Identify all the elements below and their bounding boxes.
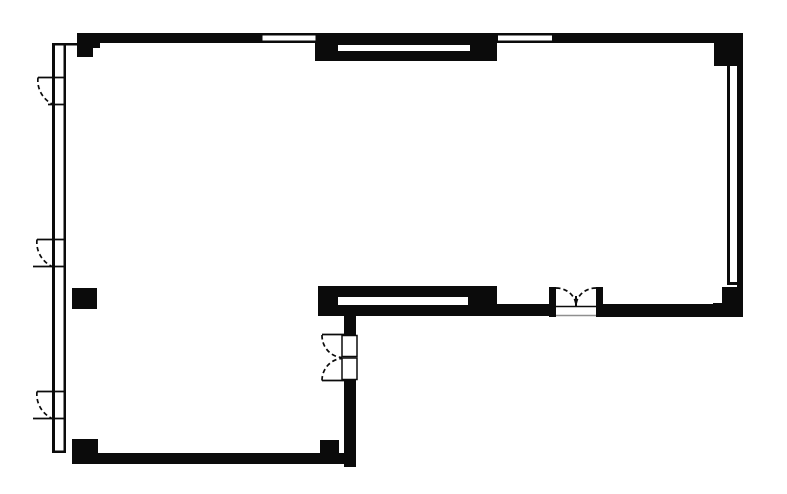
interior-door-bottom-swing-arc bbox=[322, 359, 342, 381]
interior-door-leaf-top bbox=[342, 336, 357, 357]
top-left-corner-block-step bbox=[77, 33, 93, 57]
left-door-3-swing-arc bbox=[37, 392, 52, 419]
right-wall-inner-glass-line bbox=[727, 63, 730, 284]
interior-door-top-swing-arc bbox=[322, 335, 342, 358]
left-wall-top-tick bbox=[52, 43, 77, 46]
entrance-door-jamb-right bbox=[596, 287, 603, 317]
left-door-2-swing-arc bbox=[37, 240, 52, 267]
left-wall-bottom-tick bbox=[52, 451, 66, 454]
bottom-wall-band bbox=[72, 453, 356, 464]
top-window-b-glass bbox=[498, 36, 552, 41]
interior-wall-upper bbox=[344, 315, 356, 335]
right-wall-outer-line bbox=[737, 33, 743, 317]
entrance-door-jamb-left bbox=[549, 287, 556, 317]
floorplan-drawing bbox=[0, 0, 787, 494]
left-door-1-swing-arc bbox=[38, 78, 53, 105]
top-center-window-slot bbox=[338, 45, 470, 51]
mid-window-slot bbox=[338, 297, 468, 305]
mid-bottom-wall-segment bbox=[497, 304, 550, 316]
bottom-left-corner-block bbox=[72, 439, 98, 464]
column-square bbox=[72, 288, 97, 309]
bottom-wall-step-block bbox=[320, 440, 339, 453]
right-wall-glass-end-tick bbox=[727, 282, 743, 285]
top-window-a-glass bbox=[263, 36, 316, 41]
interior-door-leaf-bottom bbox=[342, 358, 357, 380]
right-section-bottom-wall bbox=[602, 304, 742, 317]
floorplan-page bbox=[0, 0, 787, 494]
entrance-door-right-swing-arc bbox=[576, 288, 596, 306]
entrance-door-left-swing-arc bbox=[556, 288, 576, 306]
